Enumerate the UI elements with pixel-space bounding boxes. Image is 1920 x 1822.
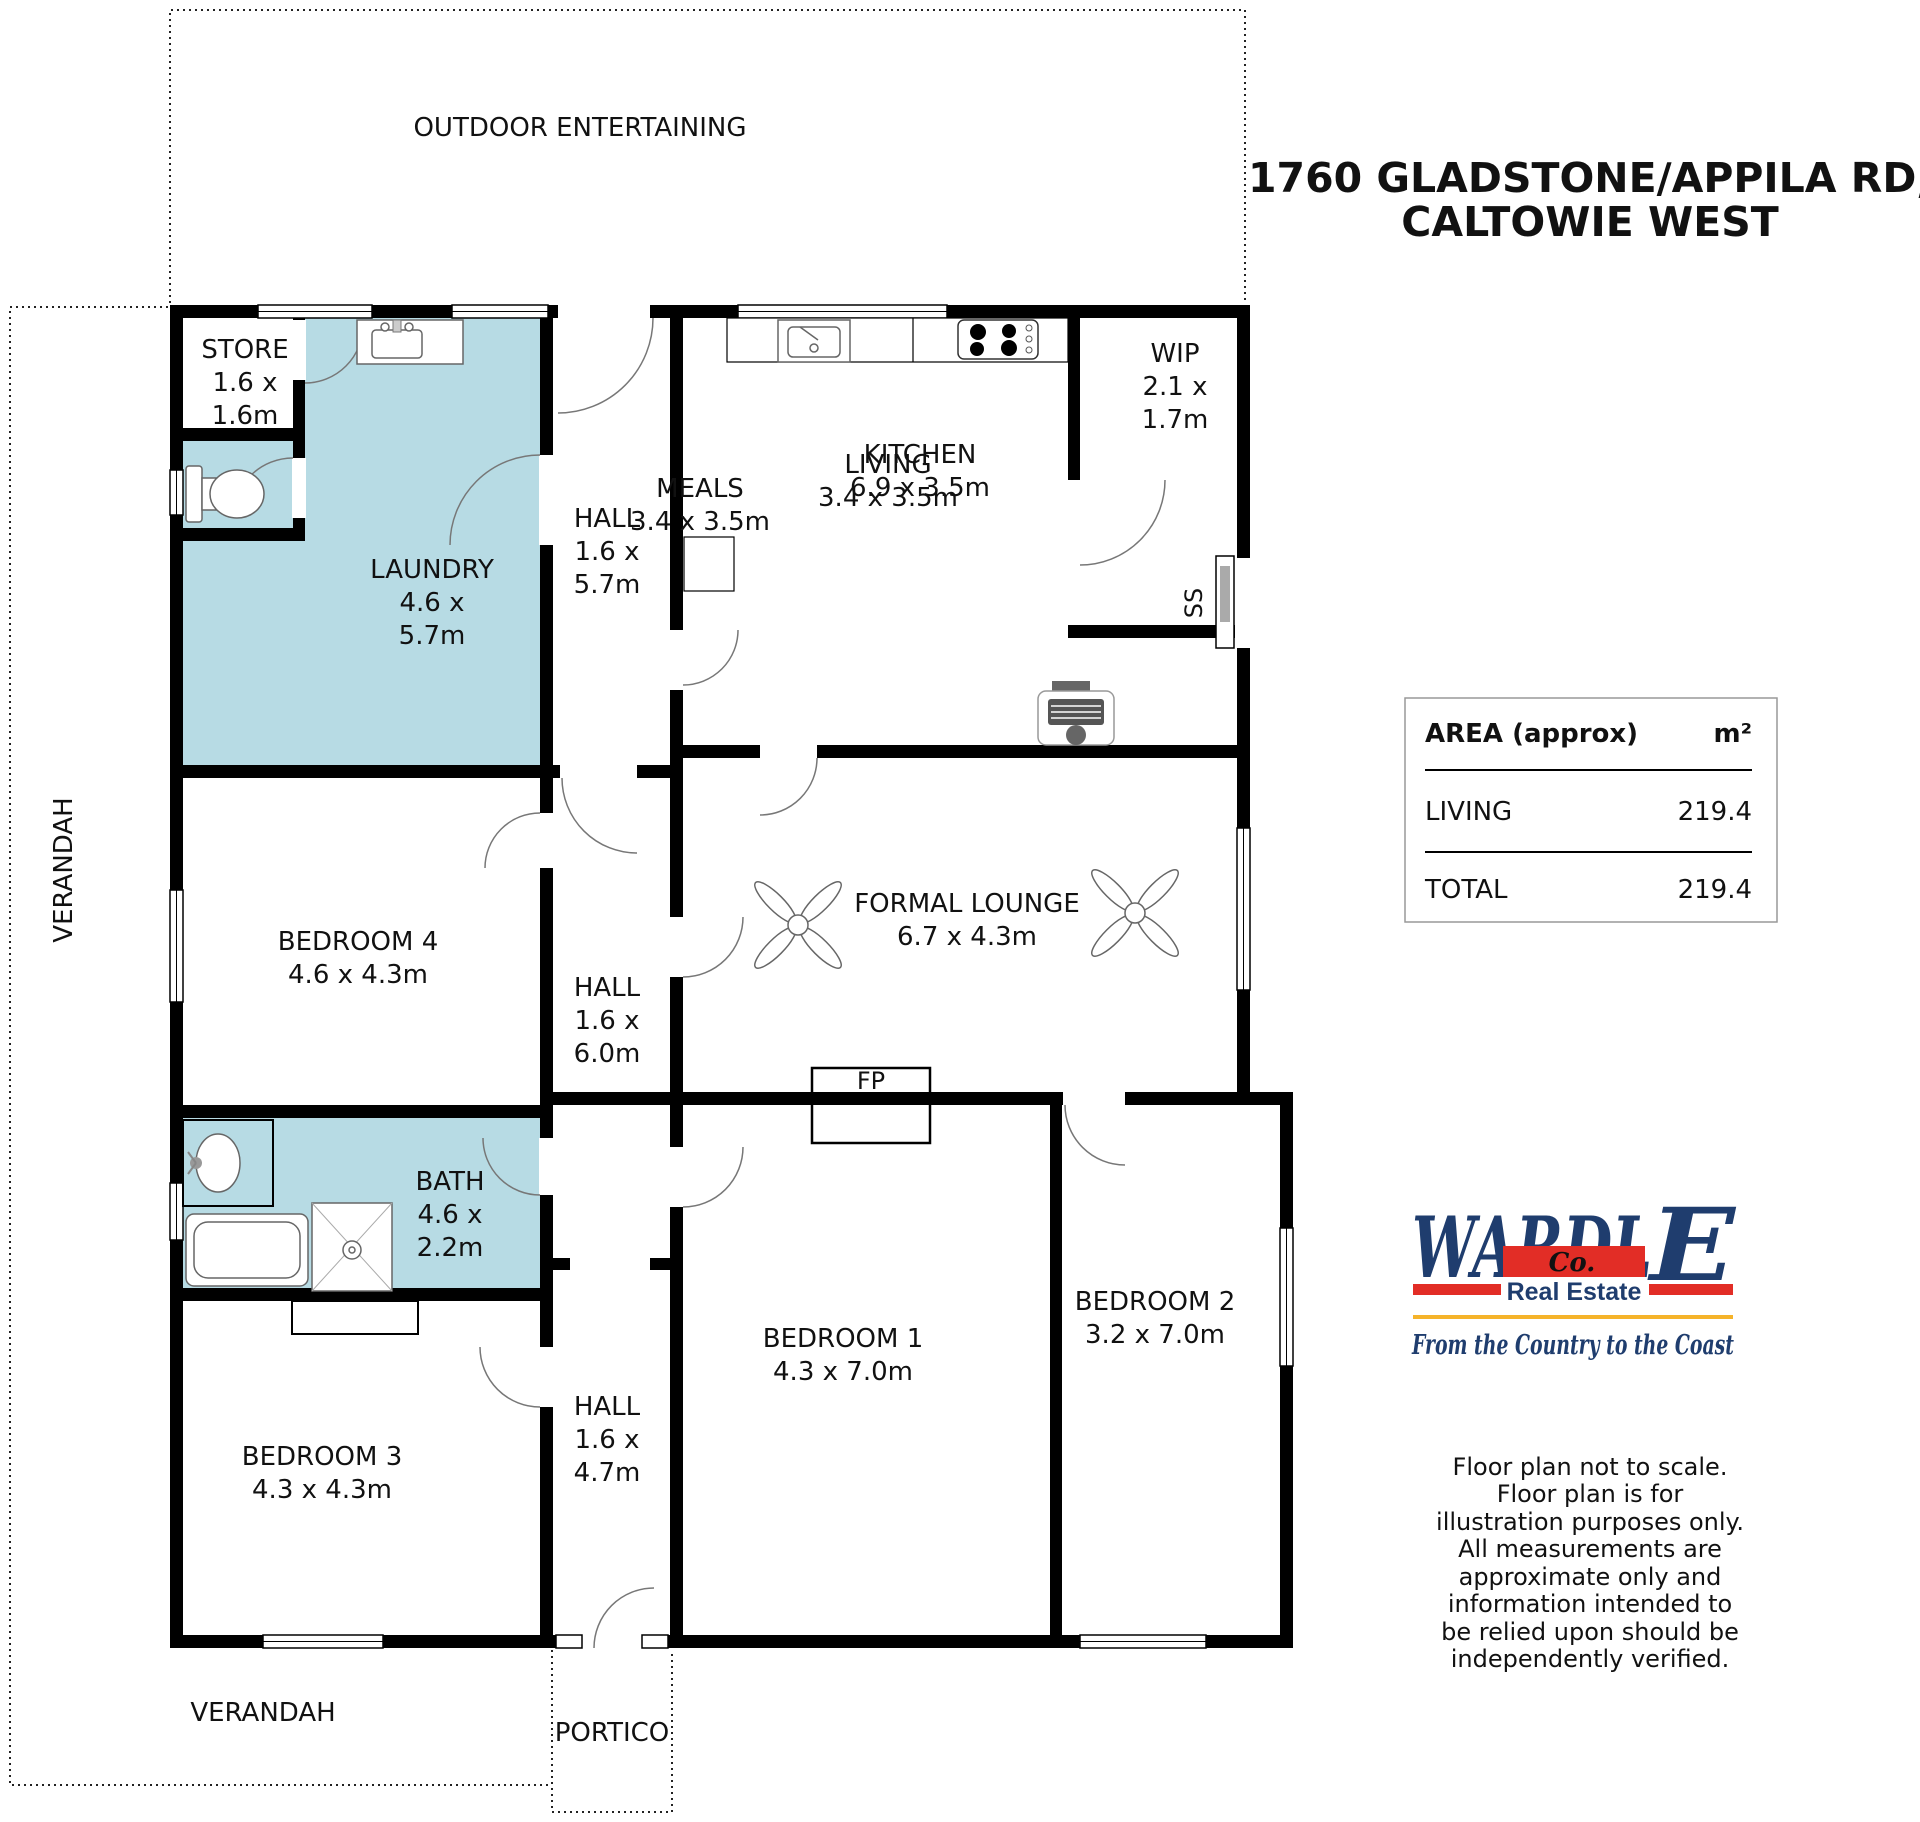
wood-heater-icon [1038,681,1114,745]
room-label-wip: WIP 2.1 x 1.7m [1142,339,1209,435]
disclaimer-line: be relied upon should be [1441,1618,1739,1646]
window [170,890,183,1002]
svg-text:4.7m: 4.7m [574,1458,641,1488]
door-arc [683,917,743,977]
svg-text:4.6 x 4.3m: 4.6 x 4.3m [288,960,428,990]
door-arc [683,630,738,685]
disclaimer-line: illustration purposes only. [1436,1508,1744,1536]
area-row-value: 219.4 [1678,875,1752,905]
svg-text:FORMAL LOUNGE: FORMAL LOUNGE [854,889,1080,919]
svg-text:2.1 x: 2.1 x [1143,372,1208,402]
laundry-sink-icon [357,320,463,364]
svg-text:4.3 x 4.3m: 4.3 x 4.3m [252,1475,392,1505]
svg-text:1.7m: 1.7m [1142,405,1209,435]
room-label-bedroom2: BEDROOM 2 3.2 x 7.0m [1075,1287,1236,1350]
disclaimer-line: All measurements are [1458,1535,1722,1563]
door-opening [560,763,637,780]
floor-plan-page: FP OUTDOOR ENTERTAINING VERANDAH VERANDA… [0,0,1920,1822]
svg-text:LAUNDRY: LAUNDRY [370,555,494,585]
pantry-box [684,537,734,591]
verandah-bottom-label: VERANDAH [190,1698,335,1728]
svg-text:BEDROOM 3: BEDROOM 3 [242,1442,403,1472]
svg-text:3.2 x 7.0m: 3.2 x 7.0m [1085,1320,1225,1350]
svg-text:4.6 x: 4.6 x [400,588,465,618]
window [1280,1228,1293,1366]
door-opening [1063,1090,1125,1107]
outdoor-entertaining-outline [170,10,1245,303]
door-opening [760,743,817,760]
wall-segment [1068,318,1080,480]
door-arc [480,1347,540,1407]
portico-label: PORTICO [555,1718,670,1748]
svg-text:1.6 x: 1.6 x [575,537,640,567]
area-row-label: TOTAL [1424,875,1508,905]
logo-red-bar [1413,1284,1501,1295]
door-opening [1235,558,1252,648]
svg-text:MEALS: MEALS [656,474,744,504]
logo-subtitle: Real Estate [1507,1278,1642,1306]
logo-tagline: From the Country to the Coast [1411,1330,1734,1361]
window [170,1183,183,1240]
wall-segment [183,1105,553,1118]
room-label-hall-mid: HALL 1.6 x 6.0m [574,973,641,1069]
room-fills [183,318,540,1288]
logo-co-text: Co. [1549,1248,1596,1278]
verandah-side-label: VERANDAH [49,797,79,942]
room-label-hall-bottom: HALL 1.6 x 4.7m [574,1392,641,1488]
window [452,305,548,318]
room-label-bedroom3: BEDROOM 3 4.3 x 4.3m [242,1442,403,1505]
disclaimer-line: Floor plan is for [1497,1480,1684,1508]
room-label-formal-lounge: FORMAL LOUNGE 6.7 x 4.3m [854,889,1080,952]
svg-text:BEDROOM 4: BEDROOM 4 [278,927,439,957]
svg-text:3.4 x 3.5m: 3.4 x 3.5m [630,507,770,537]
svg-text:5.7m: 5.7m [574,570,641,600]
title-line-1: 1760 GLADSTONE/APPILA RD, [1248,154,1920,202]
window [1080,1635,1206,1648]
area-table-header: AREA (approx) [1425,719,1638,749]
room-label-bedroom4: BEDROOM 4 4.6 x 4.3m [278,927,439,990]
window [1237,828,1250,990]
svg-text:BEDROOM 1: BEDROOM 1 [763,1324,924,1354]
window [258,305,372,318]
fireplace-icon: FP [812,1067,930,1143]
wall-segment [183,528,305,541]
svg-text:5.7m: 5.7m [399,621,466,651]
svg-text:1.6 x: 1.6 x [575,1006,640,1036]
svg-text:3.4 x 3.5m: 3.4 x 3.5m [818,483,958,513]
toilet-icon [186,466,264,522]
wall-segment [553,1258,570,1270]
kitchen-sink-icon [778,320,850,362]
door-opening [539,813,554,868]
svg-text:6.7 x 4.3m: 6.7 x 4.3m [897,922,1037,952]
disclaimer-line: independently verified. [1451,1645,1729,1673]
svg-text:4.3 x 7.0m: 4.3 x 7.0m [773,1357,913,1387]
floor-plan-canvas: FP OUTDOOR ENTERTAINING VERANDAH VERANDA… [0,0,1920,1822]
logo-gold-line [1413,1315,1733,1319]
door-opening [539,1138,554,1195]
door-arc [558,318,653,413]
svg-text:WIP: WIP [1150,339,1199,369]
area-row-value: 219.4 [1678,797,1752,827]
svg-text:STORE: STORE [201,335,288,365]
stove-cooktop-icon [958,320,1038,359]
room-label-meals: MEALS 3.4 x 3.5m [630,474,770,537]
ceiling-fan-icon [750,877,846,973]
title-line-2: CALTOWIE WEST [1401,198,1779,246]
agency-logo: WARDL E Co. Real Estate From the Country… [1411,1186,1737,1361]
outdoor-label: OUTDOOR ENTERTAINING [413,113,746,143]
door-arc [760,758,817,815]
fireplace-label: FP [857,1067,885,1095]
front-door-sill [642,1635,668,1648]
sliding-door-ss [1216,556,1234,648]
window [170,470,183,515]
door-arc [485,813,540,868]
svg-text:BATH: BATH [415,1167,484,1197]
disclaimer-line: Floor plan not to scale. [1453,1453,1728,1481]
svg-text:2.2m: 2.2m [417,1233,484,1263]
door-opening [669,630,684,690]
wall-segment [1050,1105,1062,1635]
shower-icon [312,1203,392,1291]
window [738,305,947,318]
room-label-bath: BATH 4.6 x 2.2m [415,1167,484,1263]
room-label-bedroom1: BEDROOM 1 4.3 x 7.0m [763,1324,924,1387]
page-title: 1760 GLADSTONE/APPILA RD, CALTOWIE WEST [1248,154,1920,246]
ceiling-fan-icon [1087,865,1183,961]
svg-text:4.6 x: 4.6 x [418,1200,483,1230]
door-arc [683,1147,743,1207]
door-arc [1065,1105,1125,1165]
door-opening [669,917,684,977]
disclaimer-line: information intended to [1448,1590,1732,1618]
door-opening [539,455,554,545]
door-opening [292,458,306,518]
disclaimer: Floor plan not to scale. Floor plan is f… [1436,1453,1744,1673]
door-opening [558,303,650,320]
room-label-store: STORE 1.6 x 1.6m [201,335,288,431]
svg-text:HALL: HALL [574,1392,641,1422]
wall-segment [1280,1092,1293,1648]
svg-text:6.0m: 6.0m [574,1039,641,1069]
svg-text:LIVING: LIVING [844,450,931,480]
door-arc [562,778,637,853]
logo-red-bar [1649,1284,1733,1295]
robe-box [292,1301,418,1334]
area-row-label: LIVING [1425,797,1512,827]
window [263,1635,383,1648]
sliding-door-label: SS [1180,588,1208,618]
door-opening [292,320,306,380]
wall-segment [650,1258,683,1270]
door-arc [1080,480,1165,565]
svg-text:1.6 x: 1.6 x [213,368,278,398]
svg-text:1.6m: 1.6m [212,401,279,431]
door-opening [539,1347,554,1407]
door-opening [669,1147,684,1207]
area-table-unit: m² [1714,719,1752,749]
svg-text:1.6 x: 1.6 x [575,1425,640,1455]
disclaimer-line: approximate only and [1459,1563,1722,1591]
svg-text:BEDROOM 2: BEDROOM 2 [1075,1287,1236,1317]
svg-text:HALL: HALL [574,973,641,1003]
front-door-sill [556,1635,582,1648]
bathtub-icon [186,1214,308,1286]
area-table: AREA (approx) m² LIVING 219.4 TOTAL 219.… [1405,698,1777,922]
